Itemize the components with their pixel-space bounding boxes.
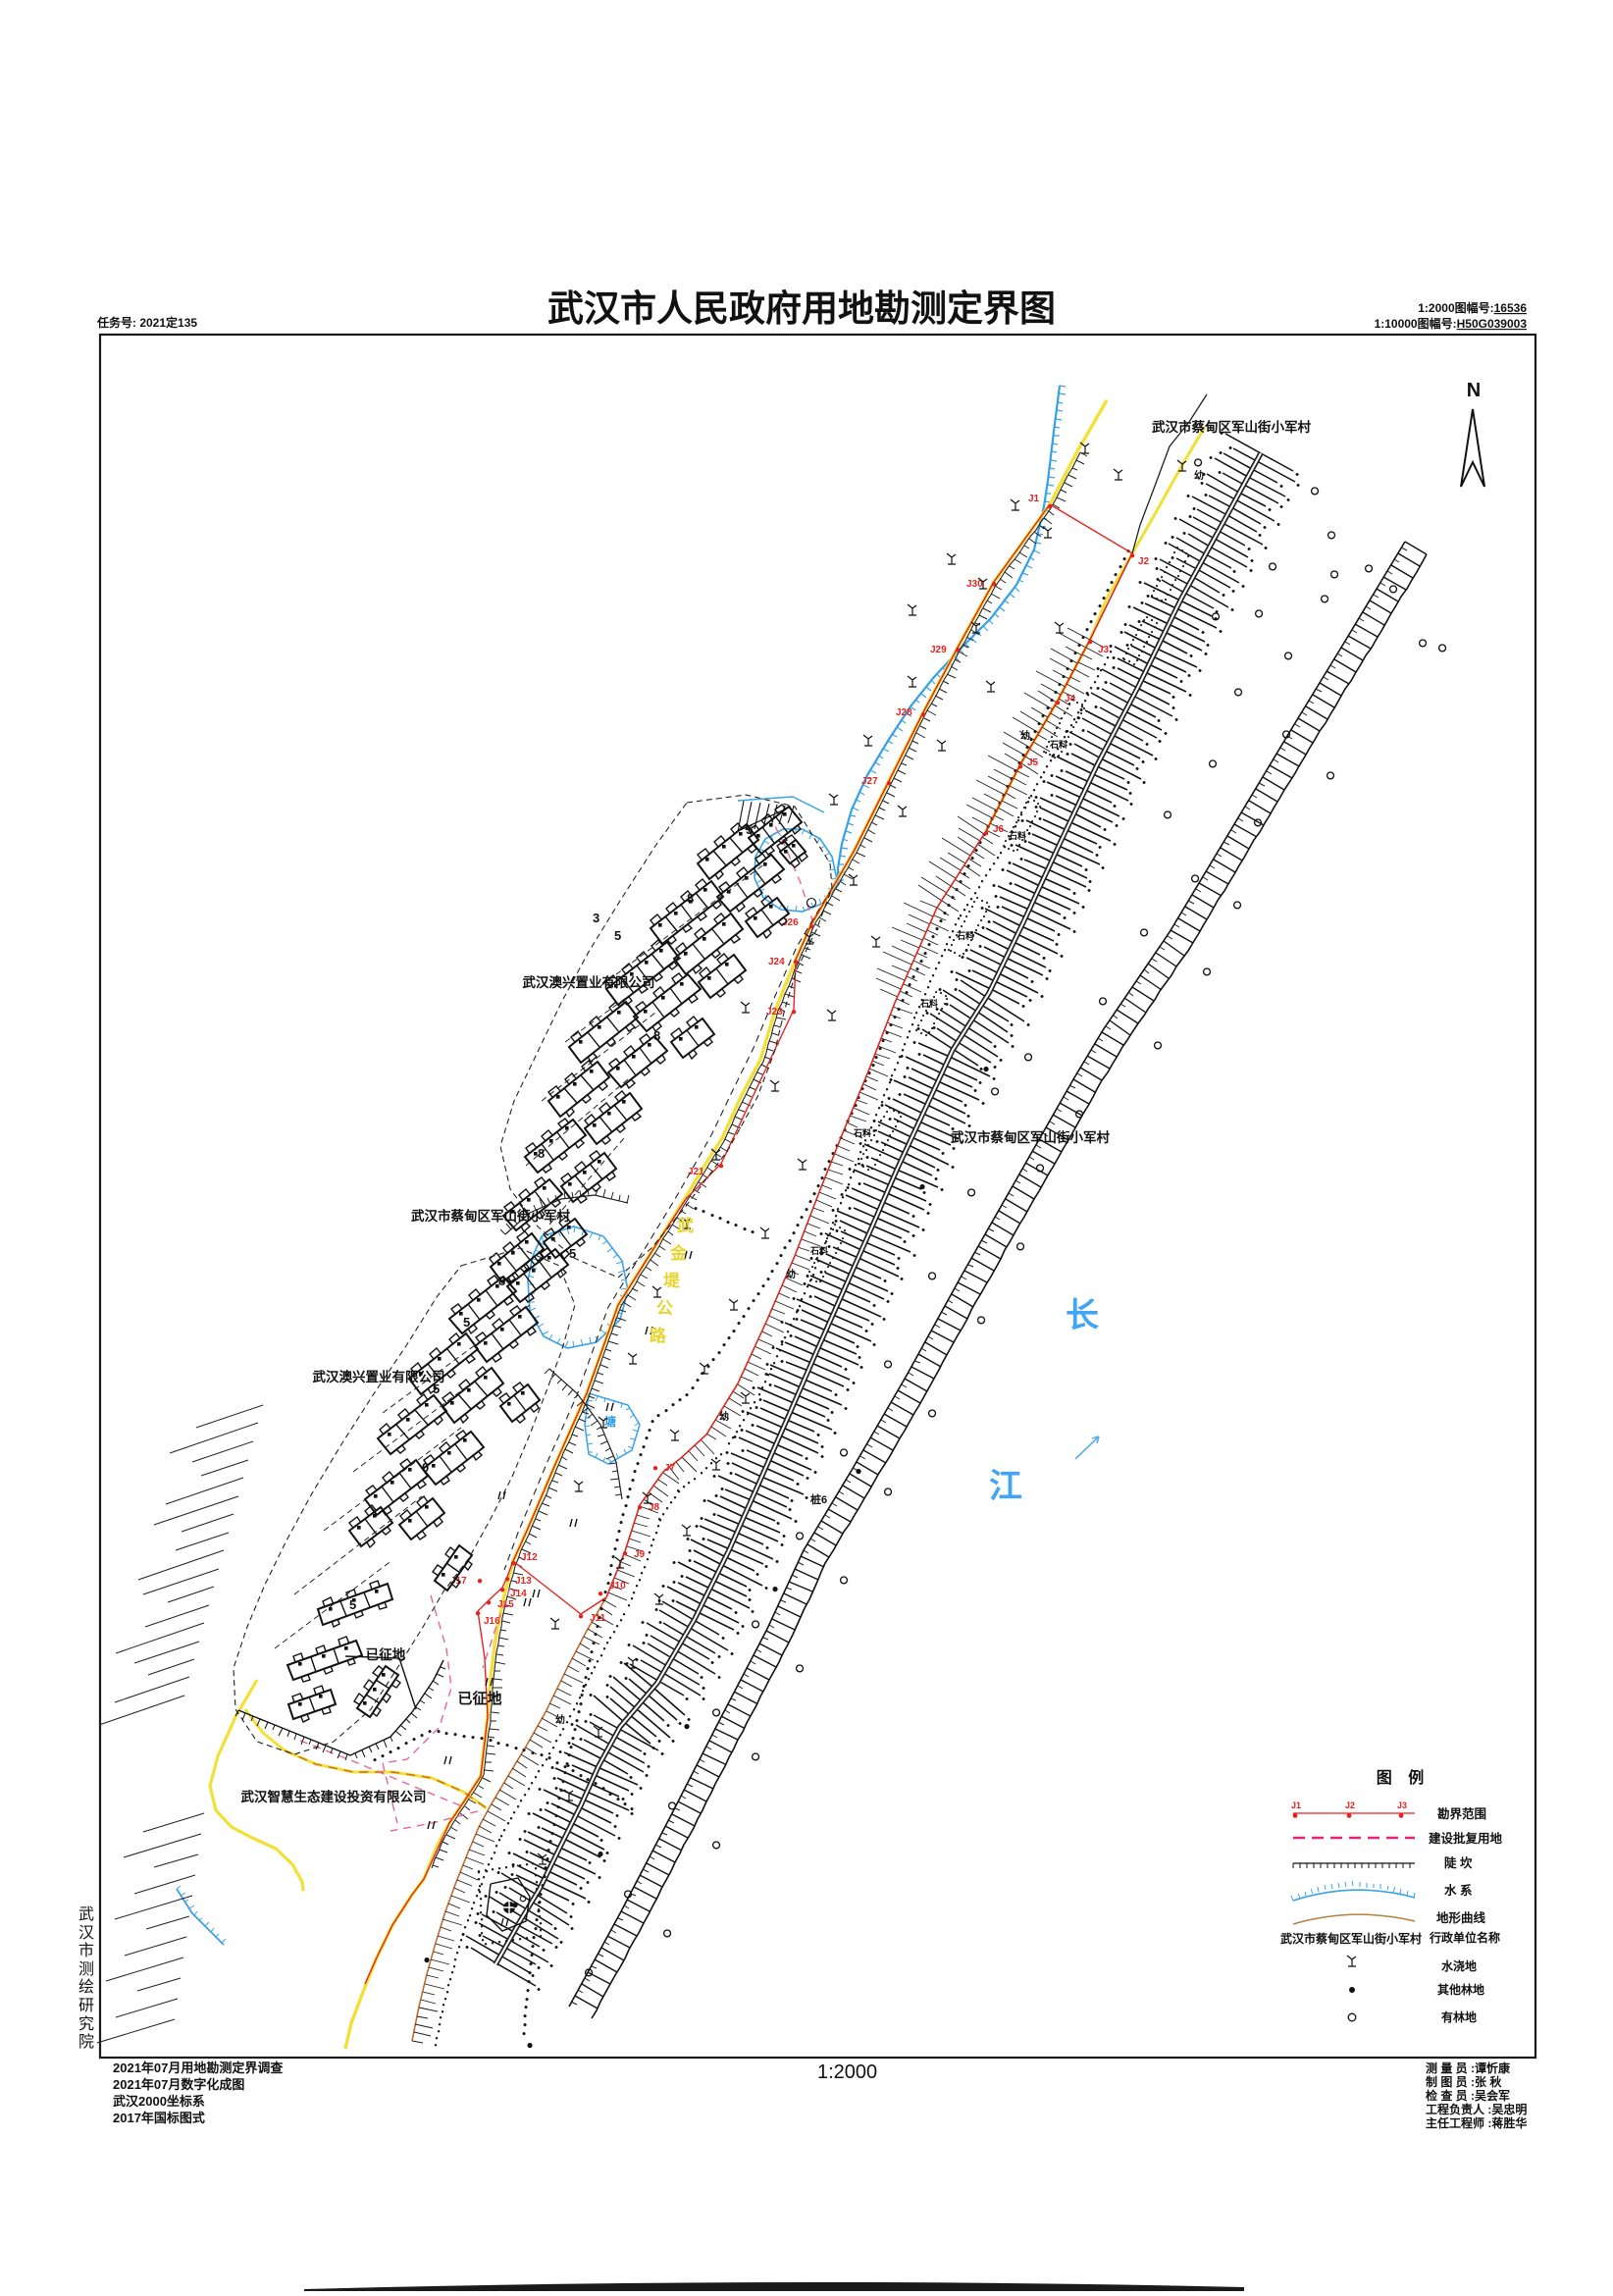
- svg-text:金: 金: [669, 1243, 688, 1263]
- svg-text:J21: J21: [688, 1167, 704, 1177]
- svg-text:J27: J27: [861, 776, 878, 787]
- svg-text:石料: 石料: [956, 930, 974, 941]
- svg-text:石料: 石料: [1049, 739, 1067, 750]
- svg-text:测: 测: [78, 1960, 94, 1978]
- svg-text:5: 5: [463, 1315, 470, 1330]
- svg-text:J7: J7: [664, 1463, 676, 1474]
- svg-text:J2: J2: [1138, 556, 1150, 567]
- svg-text:江: 江: [989, 1468, 1022, 1505]
- svg-text:8: 8: [653, 1028, 660, 1043]
- svg-text:J16: J16: [484, 1616, 500, 1627]
- svg-text:J10: J10: [609, 1581, 626, 1592]
- svg-text:公: 公: [656, 1299, 673, 1318]
- svg-text:8: 8: [498, 1274, 505, 1288]
- svg-text:石料: 石料: [853, 1127, 871, 1138]
- svg-text:1:10000图幅号:H50G039003: 1:10000图幅号:H50G039003: [1375, 316, 1528, 331]
- svg-text:绘: 绘: [78, 1978, 94, 1996]
- svg-text:堤: 堤: [663, 1272, 681, 1290]
- svg-text:2021年07月数字化成图: 2021年07月数字化成图: [113, 2077, 244, 2092]
- svg-text:研: 研: [78, 1998, 94, 2014]
- svg-text:5: 5: [349, 1597, 356, 1612]
- svg-text:武汉智慧生态建设投资有限公司: 武汉智慧生态建设投资有限公司: [241, 1789, 427, 1804]
- svg-text:已征地: 已征地: [366, 1646, 406, 1662]
- svg-text:水 系: 水 系: [1444, 1883, 1473, 1898]
- svg-text:幼: 幼: [1194, 469, 1204, 482]
- svg-text:幼: 幼: [719, 1410, 729, 1423]
- svg-text:武汉市蔡甸区军山街小军村: 武汉市蔡甸区军山街小军村: [1280, 1931, 1422, 1946]
- svg-text:J23: J23: [766, 1007, 783, 1018]
- svg-text:长: 长: [1066, 1297, 1099, 1334]
- svg-text:J12: J12: [521, 1552, 538, 1563]
- svg-text:3: 3: [593, 911, 599, 925]
- svg-text:幼: 幼: [555, 1713, 565, 1726]
- svg-text:市: 市: [78, 1942, 94, 1959]
- svg-text:行政单位名称: 行政单位名称: [1429, 1930, 1500, 1945]
- svg-text:石料: 石料: [809, 1245, 828, 1256]
- svg-text:1:2000: 1:2000: [817, 2061, 877, 2083]
- svg-text:8: 8: [538, 1146, 545, 1161]
- svg-text:J2: J2: [1345, 1800, 1355, 1810]
- svg-text:制 图 员 :张 秋: 制 图 员 :张 秋: [1426, 2074, 1502, 2089]
- svg-text:有林地: 有林地: [1441, 2009, 1477, 2024]
- svg-text:幼: 幼: [786, 1268, 796, 1280]
- svg-text:武汉澳兴置业有限公司: 武汉澳兴置业有限公司: [523, 974, 655, 990]
- svg-text:J6: J6: [993, 824, 1005, 835]
- svg-text:武: 武: [677, 1216, 694, 1235]
- svg-text:J29: J29: [930, 645, 947, 655]
- svg-text:J13: J13: [515, 1576, 532, 1587]
- svg-text:J14: J14: [510, 1589, 527, 1599]
- svg-text:图 例: 图 例: [1377, 1768, 1430, 1787]
- svg-text:1:2000图幅号:16536: 1:2000图幅号:16536: [1418, 300, 1527, 315]
- svg-text:汉: 汉: [78, 1924, 94, 1942]
- svg-text:地形曲线: 地形曲线: [1436, 1910, 1486, 1925]
- svg-text:石料: 石料: [919, 998, 938, 1009]
- svg-text:桩6: 桩6: [810, 1492, 827, 1506]
- svg-text:塘: 塘: [604, 1414, 616, 1429]
- svg-text:J1: J1: [1291, 1800, 1301, 1810]
- svg-text:石料: 石料: [1008, 830, 1026, 841]
- svg-text:幼: 幼: [1020, 729, 1030, 742]
- svg-text:任务号: 2021定135: 任务号: 2021定135: [96, 315, 197, 330]
- svg-text:检 查 员 :吴会军: 检 查 员 :吴会军: [1426, 2088, 1510, 2103]
- svg-text:陡 坎: 陡 坎: [1444, 1855, 1473, 1870]
- svg-text:测 量 员 :谭忻康: 测 量 员 :谭忻康: [1426, 2061, 1511, 2075]
- svg-text:J1: J1: [1028, 494, 1040, 504]
- svg-text:武汉市人民政府用地勘测定界图: 武汉市人民政府用地勘测定界图: [547, 287, 1056, 329]
- svg-text:院: 院: [78, 2033, 94, 2051]
- svg-text:究: 究: [78, 2015, 94, 2033]
- svg-text:J9: J9: [634, 1549, 646, 1560]
- svg-text:J24: J24: [768, 957, 785, 967]
- svg-text:路: 路: [650, 1326, 667, 1345]
- svg-text:武汉市蔡甸区军山街小军村: 武汉市蔡甸区军山街小军村: [1152, 419, 1311, 435]
- svg-text:武汉市蔡甸区军山街小军村: 武汉市蔡甸区军山街小军村: [951, 1129, 1110, 1145]
- svg-text:建设批复用地: 建设批复用地: [1429, 1831, 1503, 1846]
- svg-text:2017年国标图式: 2017年国标图式: [113, 2111, 205, 2125]
- svg-text:J8: J8: [649, 1502, 660, 1513]
- svg-text:J28: J28: [896, 707, 912, 718]
- svg-text:J5: J5: [1027, 757, 1039, 768]
- svg-text:J11: J11: [590, 1613, 606, 1624]
- svg-text:勘界范围: 勘界范围: [1437, 1806, 1486, 1821]
- svg-text:武汉2000坐标系: 武汉2000坐标系: [113, 2094, 205, 2109]
- svg-text:已征地: 已征地: [457, 1690, 501, 1707]
- svg-text:5: 5: [569, 1246, 576, 1261]
- svg-text:主任工程师 :蒋胜华: 主任工程师 :蒋胜华: [1426, 2115, 1527, 2130]
- svg-text:5: 5: [746, 822, 753, 837]
- svg-text:水浇地: 水浇地: [1441, 1958, 1477, 1973]
- svg-text:2021年07月用地勘测定界调查: 2021年07月用地勘测定界调查: [113, 2061, 284, 2075]
- svg-text:5: 5: [614, 928, 621, 943]
- svg-text:武: 武: [78, 1905, 94, 1923]
- svg-text:8: 8: [687, 891, 694, 906]
- svg-text:武汉市蔡甸区军山街小军村: 武汉市蔡甸区军山街小军村: [411, 1208, 570, 1224]
- svg-text:工程负责人 :吴忠明: 工程负责人 :吴忠明: [1426, 2102, 1527, 2116]
- svg-text:N: N: [1467, 380, 1481, 401]
- svg-text:0: 0: [422, 1460, 429, 1475]
- svg-text:其他林地: 其他林地: [1437, 1982, 1484, 1997]
- svg-text:J3: J3: [1098, 645, 1110, 655]
- svg-text:武汉澳兴置业有限公司: 武汉澳兴置业有限公司: [313, 1369, 445, 1384]
- svg-text:J3: J3: [1397, 1800, 1407, 1810]
